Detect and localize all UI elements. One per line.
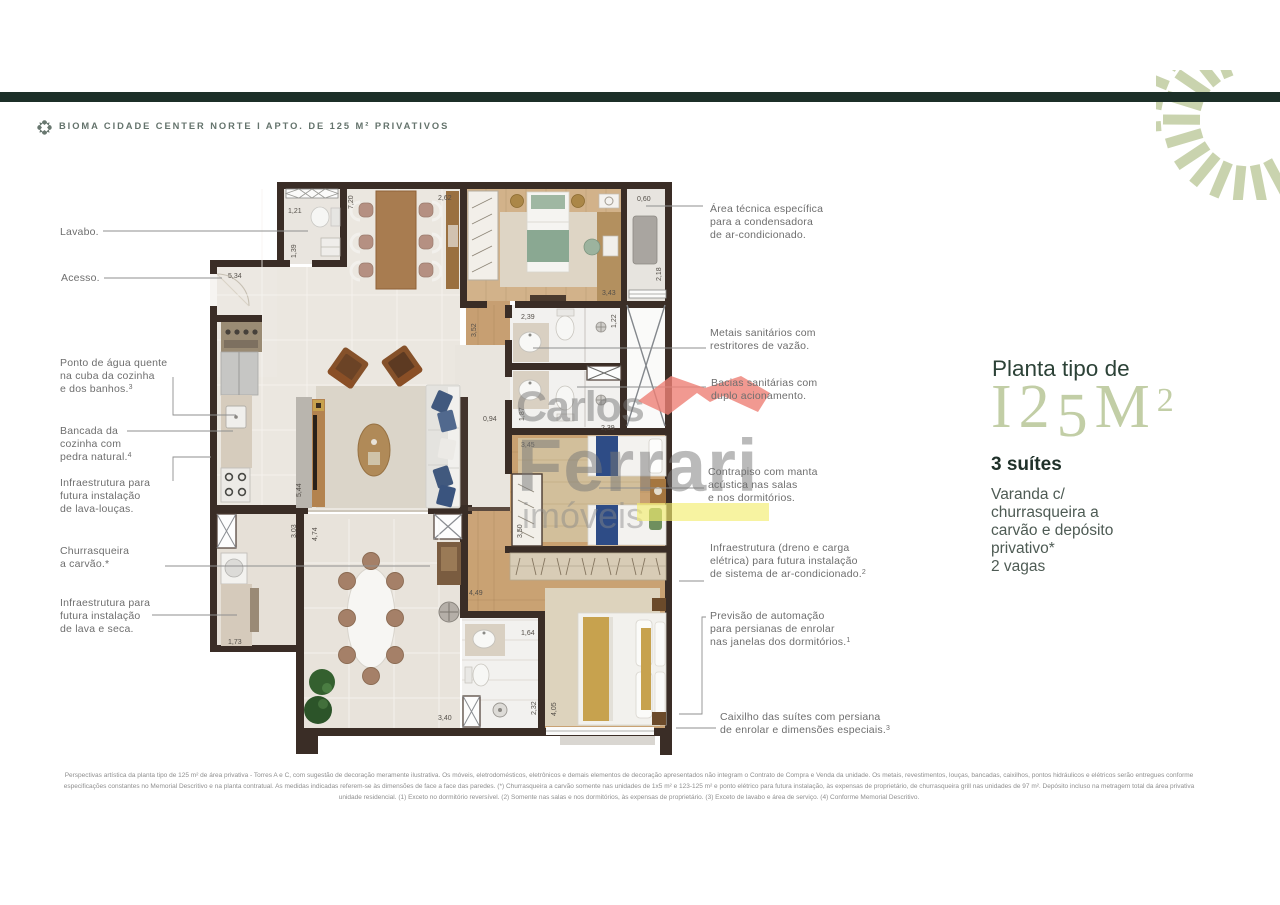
svg-text:3,52: 3,52 (471, 323, 478, 337)
svg-text:5,34: 5,34 (228, 273, 242, 280)
svg-text:3,03: 3,03 (291, 524, 298, 538)
svg-text:1,73: 1,73 (228, 639, 242, 646)
svg-text:1,64: 1,64 (521, 630, 535, 637)
svg-text:3,43: 3,43 (602, 290, 616, 297)
svg-text:3,40: 3,40 (438, 715, 452, 722)
svg-text:2,32: 2,32 (531, 701, 538, 715)
svg-text:4,49: 4,49 (469, 590, 483, 597)
svg-text:1,21: 1,21 (288, 208, 302, 215)
svg-text:2,39: 2,39 (521, 314, 535, 321)
svg-text:2,62: 2,62 (438, 195, 452, 202)
svg-text:imóveis: imóveis (522, 495, 644, 536)
svg-text:0,94: 0,94 (483, 416, 497, 423)
svg-text:1,22: 1,22 (611, 314, 618, 328)
svg-text:7,20: 7,20 (348, 195, 355, 209)
svg-text:0,60: 0,60 (637, 196, 651, 203)
svg-text:2,18: 2,18 (656, 267, 663, 281)
svg-text:5,44: 5,44 (296, 483, 303, 497)
svg-text:4,05: 4,05 (551, 702, 558, 716)
svg-text:1,39: 1,39 (291, 244, 298, 258)
svg-text:4,74: 4,74 (312, 527, 319, 541)
